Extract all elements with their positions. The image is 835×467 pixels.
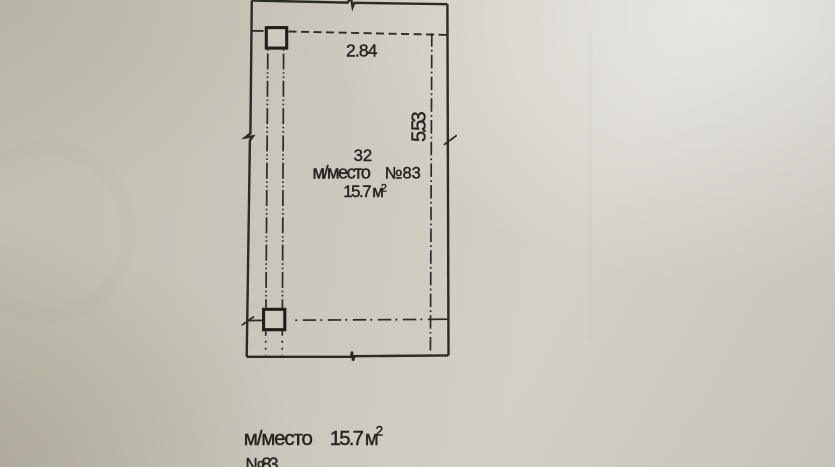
- svg-text:15.7: 15.7: [330, 428, 364, 450]
- svg-text:№83: №83: [385, 164, 421, 182]
- svg-text:2: 2: [376, 423, 384, 438]
- svg-text:5.53: 5.53: [409, 111, 431, 142]
- svg-text:2.84: 2.84: [346, 41, 378, 61]
- svg-text:2: 2: [381, 182, 387, 194]
- svg-text:м/место: м/место: [244, 427, 313, 450]
- svg-text:№83: №83: [245, 455, 278, 467]
- svg-text:15.7: 15.7: [343, 182, 371, 201]
- svg-text:м/место: м/место: [313, 161, 371, 182]
